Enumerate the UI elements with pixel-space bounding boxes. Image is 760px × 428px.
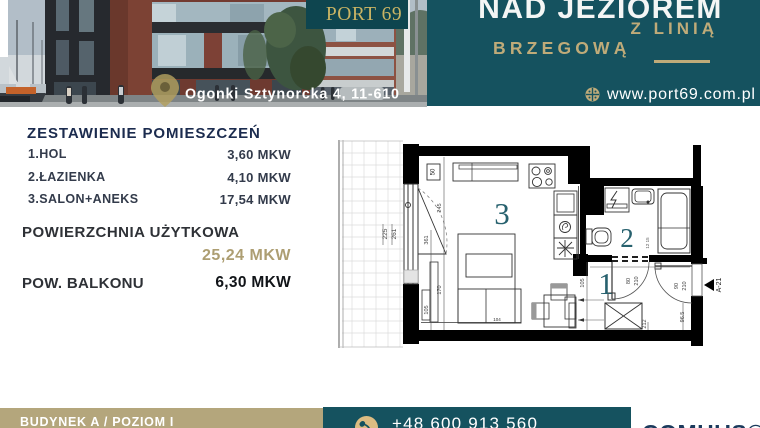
svg-text:170: 170: [437, 285, 443, 294]
svg-text:12 15: 12 15: [645, 237, 650, 249]
svg-text:90: 90: [674, 283, 680, 289]
svg-text:50: 50: [431, 168, 437, 175]
svg-text:104: 104: [493, 317, 501, 322]
svg-text:96.5: 96.5: [680, 312, 686, 323]
svg-text:1: 1: [598, 266, 614, 301]
svg-text:245: 245: [437, 203, 443, 212]
svg-text:A-21: A-21: [716, 278, 723, 293]
svg-text:210: 210: [682, 281, 688, 290]
svg-text:210: 210: [634, 276, 640, 285]
svg-text:3: 3: [494, 196, 510, 231]
svg-text:105: 105: [580, 278, 586, 287]
svg-text:2: 2: [620, 223, 634, 253]
svg-text:80: 80: [626, 278, 632, 284]
svg-text:361: 361: [424, 235, 430, 244]
svg-text:105: 105: [424, 305, 430, 314]
svg-text:212: 212: [642, 319, 648, 328]
